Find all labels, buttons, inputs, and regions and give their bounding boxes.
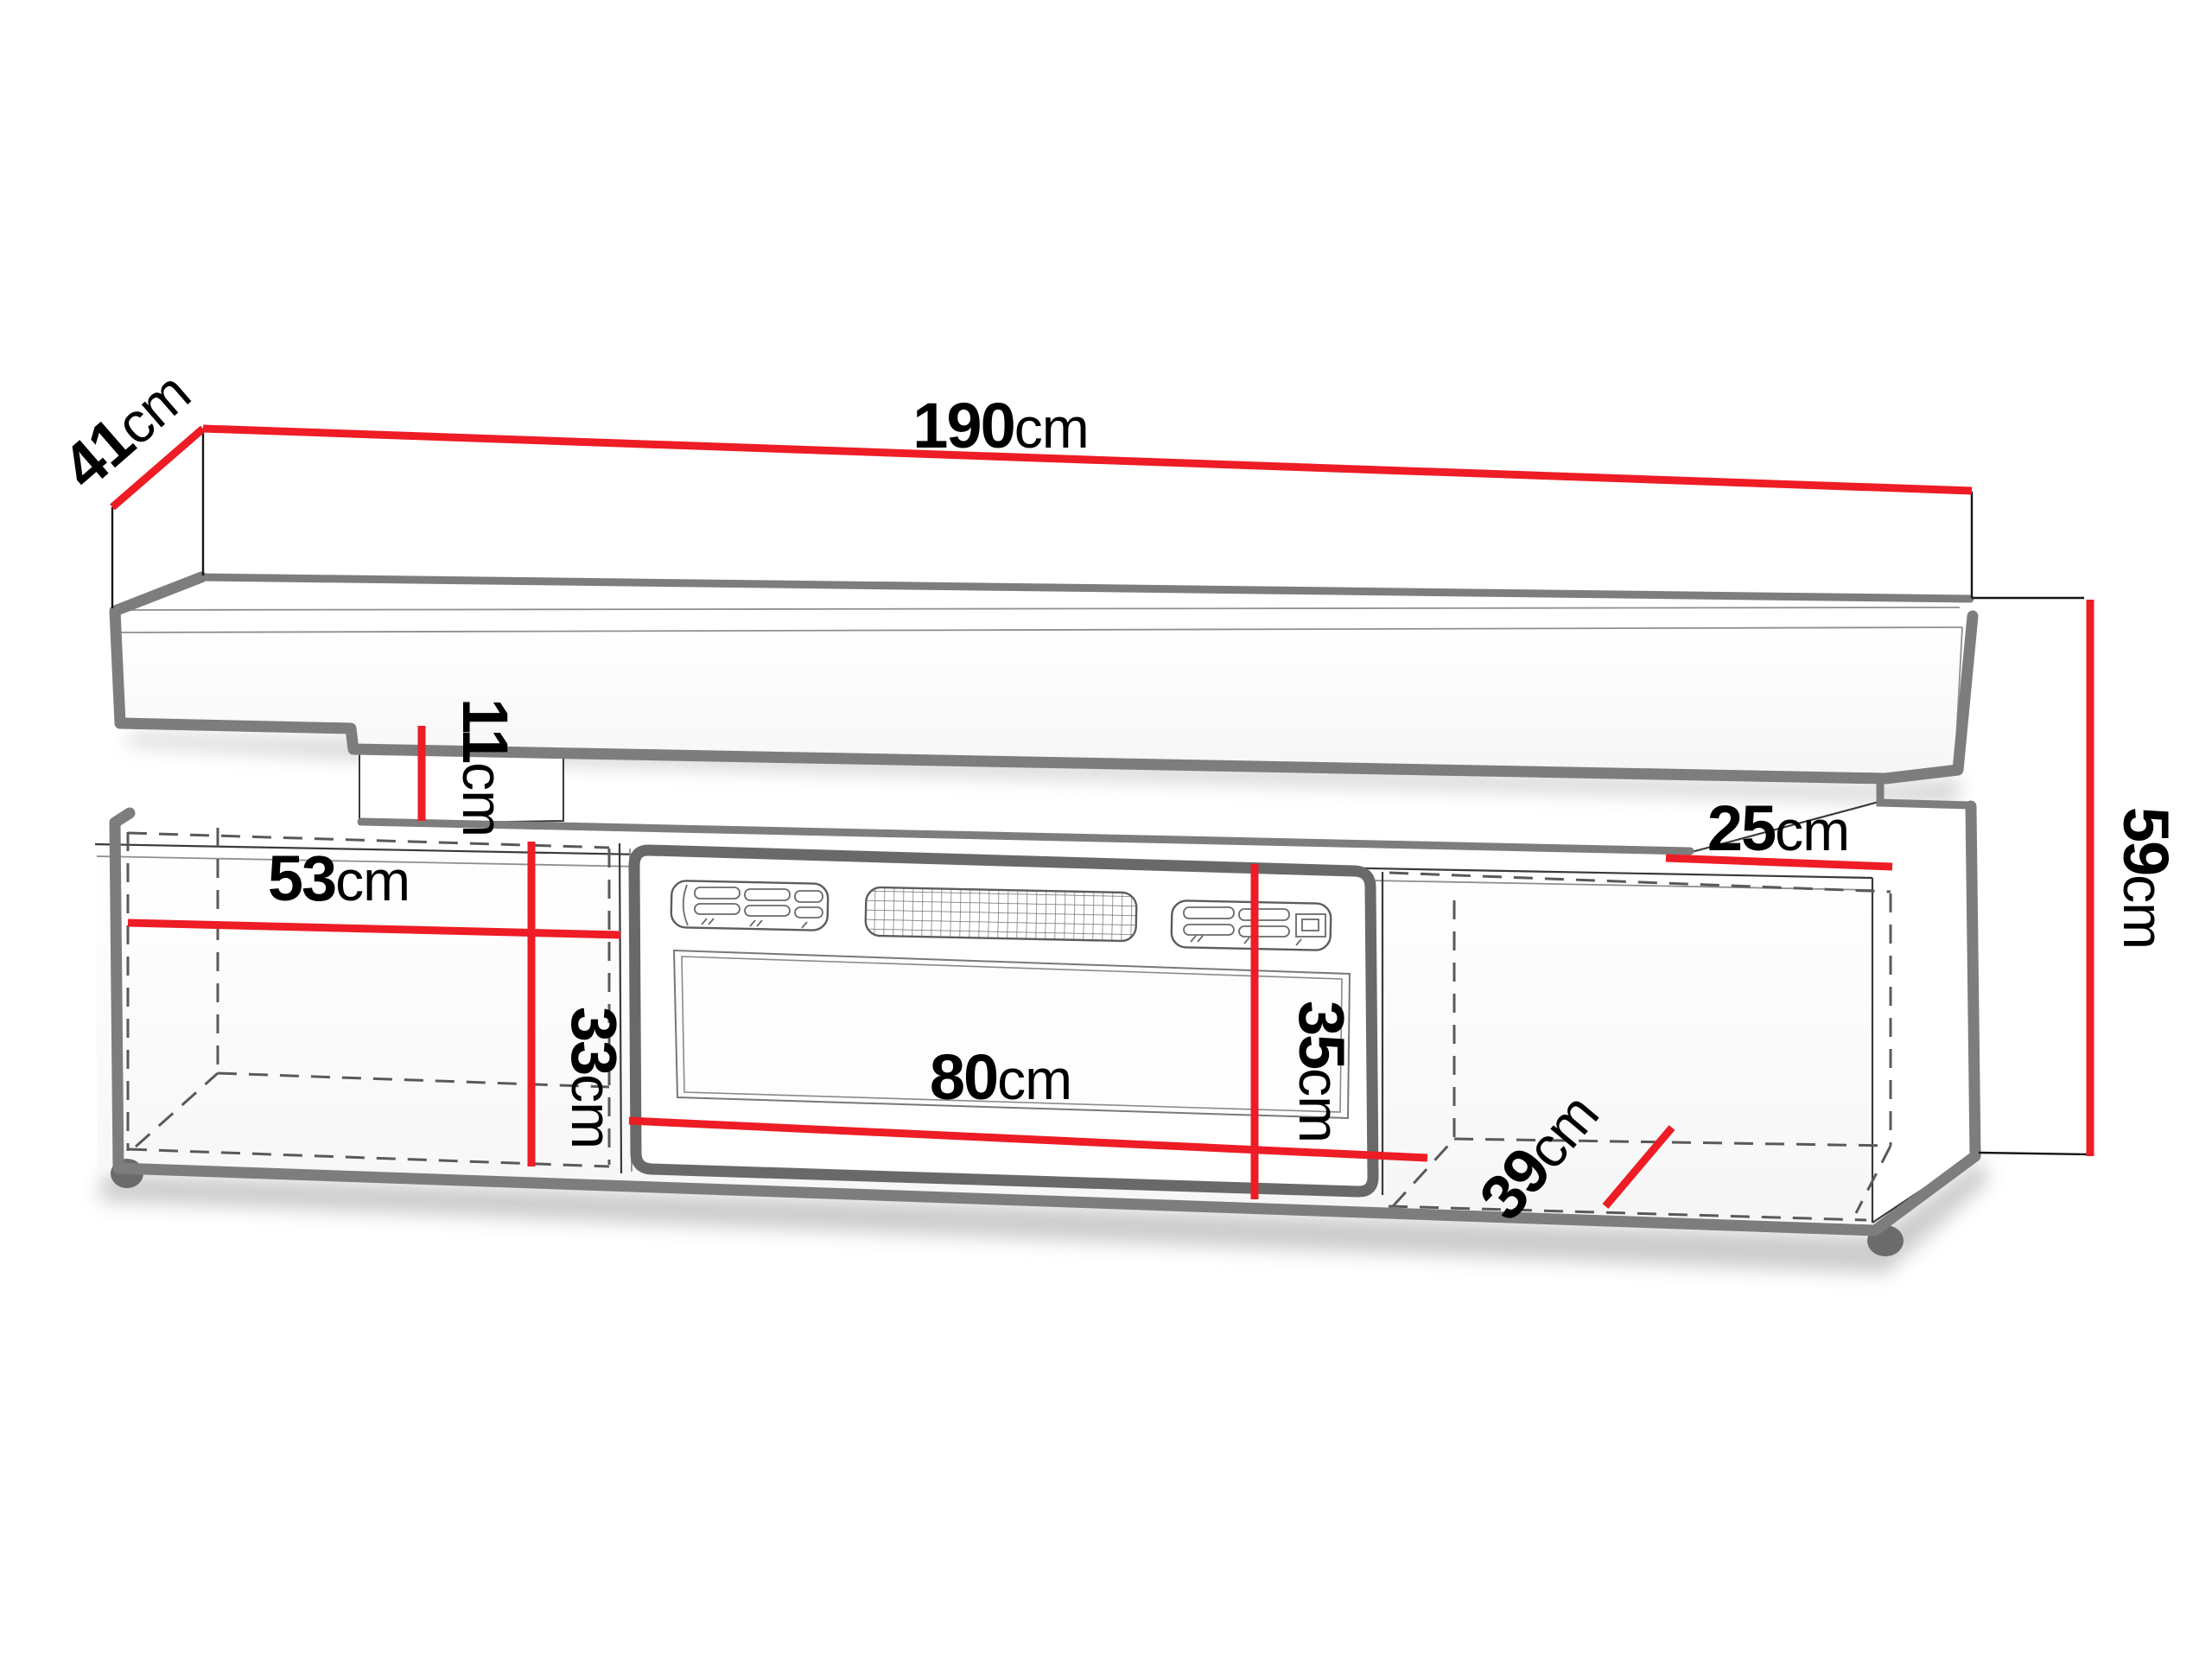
dim-label-80: 80cm xyxy=(930,1041,1071,1113)
fireplace-left-vent xyxy=(671,880,828,931)
ext-line-190-right xyxy=(1972,492,2084,598)
dim-label-11: 11cm xyxy=(449,698,521,836)
dimension-diagram: 190cm 41cm 11cm 53cm 33cm 80cm 35cm 25cm… xyxy=(0,0,2212,1659)
ext-line-59-bottom xyxy=(1979,1153,2090,1154)
dim-label-59: 59cm xyxy=(2110,807,2182,949)
dim-label-53: 53cm xyxy=(268,842,410,914)
diagram-canvas: 190cm 41cm 11cm 53cm 33cm 80cm 35cm 25cm… xyxy=(0,0,2212,1659)
fireplace-mesh-grille xyxy=(865,887,1136,942)
dim-label-25: 25cm xyxy=(1707,792,1849,864)
mesh-grille-outline xyxy=(865,887,1136,942)
dim-label-35: 35cm xyxy=(1286,1001,1357,1142)
dim-label-33: 33cm xyxy=(558,1007,630,1148)
dim-label-41: 41cm xyxy=(48,356,202,503)
dim-label-190: 190cm xyxy=(912,390,1088,461)
